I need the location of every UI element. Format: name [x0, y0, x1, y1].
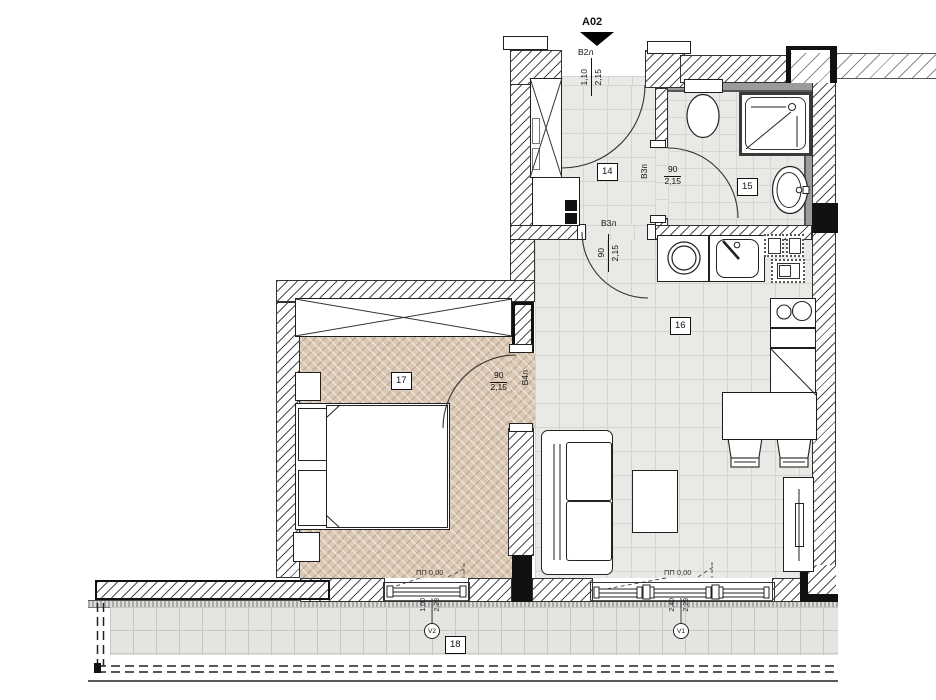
wall-segment [508, 428, 534, 556]
door-entrance-width: 1,10 [580, 69, 589, 86]
section-marker-label: A02 [582, 16, 602, 28]
wall-corner-bar [786, 48, 791, 83]
parapet-wall [95, 580, 330, 600]
pillow [298, 470, 327, 526]
wall-corner-bar [786, 46, 837, 50]
cabinet-detail [565, 213, 577, 224]
kitchen-counter [770, 328, 816, 348]
room-number-terrace: 18 [445, 636, 466, 654]
tv-screen [795, 503, 804, 547]
shaft-pipes [532, 148, 540, 170]
stove-module-inner [768, 238, 781, 254]
wall-segment [532, 578, 593, 602]
room-number-living: 16 [670, 317, 691, 335]
door-entrance-dimensions: 1,10 2,15 [580, 58, 602, 96]
wall-corner-bar [830, 48, 837, 83]
nightstand [295, 372, 321, 401]
sofa-cushion [566, 442, 612, 501]
floor-plan: A02 В2л 1,10 2,15 В3п 90 2,15 В3л 90 2,1… [0, 0, 936, 700]
toilet-tank [684, 79, 723, 93]
door-jamb [650, 215, 666, 223]
door-bedroom-height: 2,15 [490, 383, 507, 393]
dimension-divider [608, 234, 609, 272]
washing-machine [657, 235, 709, 282]
dimension-divider [591, 58, 592, 96]
oven-inner-small [779, 265, 791, 277]
door-jamb [647, 224, 656, 240]
wall-corner [791, 53, 830, 83]
wall-segment [510, 225, 586, 240]
dining-table [722, 392, 817, 440]
door-bathroom-width: 90 [664, 165, 681, 177]
kitchen-sink-basin [716, 239, 759, 278]
corner-cabinet [770, 348, 816, 395]
window-v2-width: 1,00 [420, 598, 427, 612]
room-number-hall: 14 [597, 163, 618, 181]
door-entrance-height: 2,15 [594, 69, 603, 86]
wall-pillar [812, 203, 838, 233]
level-mark: ПП 0,00 [416, 568, 443, 577]
bedroom-door-threshold [510, 353, 535, 428]
railing-post [94, 663, 101, 673]
window-v2-height: 2,29 [434, 598, 441, 612]
sofa-cushion [566, 501, 612, 561]
door-entrance-label: В2л [578, 48, 593, 57]
stove-module-inner [789, 238, 801, 254]
window-v1-width: 2,40 [669, 598, 676, 612]
door-jamb [650, 140, 666, 148]
neighbour-wall [837, 53, 936, 79]
coffee-table [632, 470, 678, 533]
door-bedroom-label: В4л [521, 370, 530, 385]
cooktop [770, 298, 816, 328]
door-jamb [509, 344, 533, 353]
cabinet-detail [565, 200, 577, 211]
wall-segment [655, 88, 668, 148]
door-bathroom-height: 2,15 [664, 177, 681, 187]
section-marker-arrow-icon [580, 32, 614, 46]
door-living-height: 2,15 [611, 245, 620, 262]
shower-tray [745, 97, 806, 150]
door-bedroom-width: 90 [490, 371, 507, 383]
door-bedroom-dimensions: 90 2,15 [490, 371, 507, 393]
terrace-floor [110, 607, 838, 655]
window-v1-height: 2,29 [683, 598, 690, 612]
window-v2-tag: V2 [424, 623, 440, 639]
door-living-width: 90 [597, 248, 606, 257]
level-mark: ПП 0,00 [664, 568, 691, 577]
wall-corner-bar [800, 594, 838, 602]
door-jamb [577, 224, 586, 240]
room-number-bathroom: 15 [737, 178, 758, 196]
nightstand [293, 532, 320, 562]
wardrobe [295, 298, 512, 337]
lintel [647, 41, 691, 54]
shaft-pipes [532, 118, 540, 144]
wall-segment [645, 50, 685, 88]
door-bathroom-label: В3п [640, 164, 649, 179]
wall-segment [468, 578, 512, 602]
door-living-label: В3л [601, 219, 616, 228]
window-v1-tag: V1 [673, 623, 689, 639]
wall-pillar [512, 555, 532, 602]
room-number-bedroom: 17 [391, 372, 412, 390]
lintel [503, 36, 548, 50]
door-jamb [509, 423, 533, 432]
bed-duvet [326, 405, 448, 528]
door-living-dimensions: 90 2,15 [597, 234, 619, 272]
pillow [298, 408, 327, 461]
door-bathroom-dimensions: 90 2,15 [664, 165, 681, 187]
